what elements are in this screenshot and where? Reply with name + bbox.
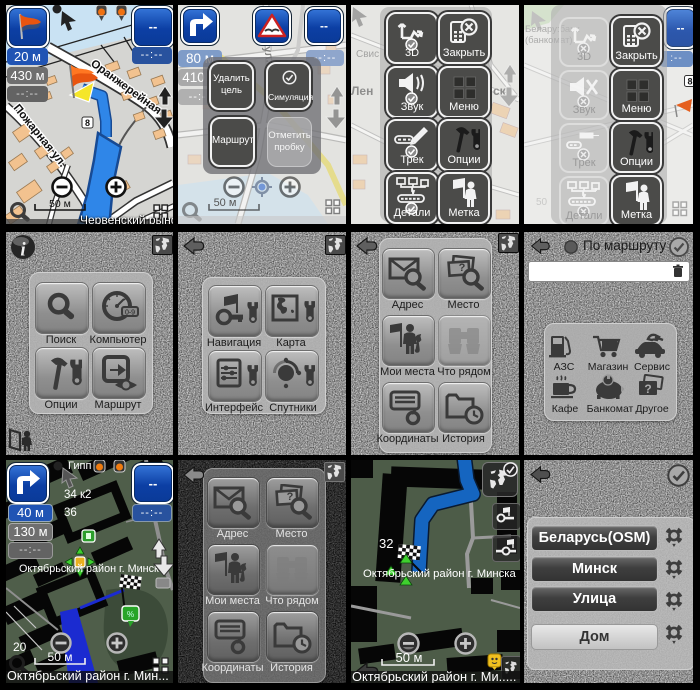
svg-text:Свис: Свис xyxy=(356,49,379,60)
svg-text:34 к2: 34 к2 xyxy=(64,489,91,501)
svg-text:%: % xyxy=(127,610,134,619)
svg-text:32: 32 xyxy=(379,536,393,551)
svg-text:8: 8 xyxy=(85,118,90,128)
svg-text:Лен: Лен xyxy=(351,84,373,98)
svg-text:?: ? xyxy=(644,382,651,396)
svg-text:Октябрьский район г. Минска: Октябрьский район г. Минска xyxy=(19,563,165,575)
svg-text:Гипп: Гипп xyxy=(68,460,91,472)
svg-text:i: i xyxy=(20,240,26,261)
svg-text:50: 50 xyxy=(536,197,548,208)
svg-text:8: 8 xyxy=(687,77,692,87)
svg-text:0-9: 0-9 xyxy=(125,310,135,317)
svg-text:Октябрьский район г. Минска: Октябрьский район г. Минска xyxy=(363,568,516,580)
svg-text:36: 36 xyxy=(64,507,77,519)
